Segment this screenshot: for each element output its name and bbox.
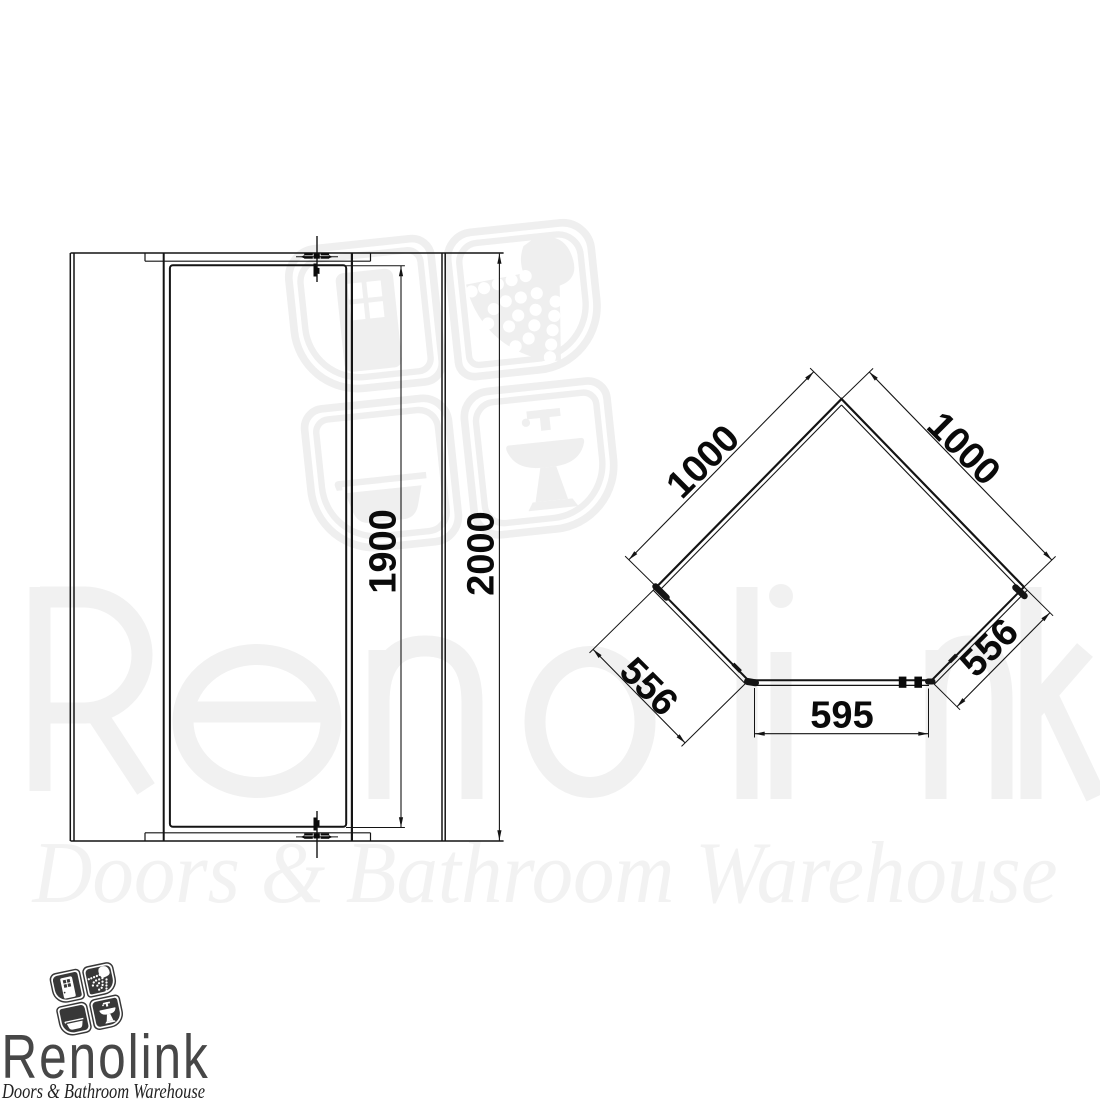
svg-text:1900: 1900 xyxy=(363,509,405,594)
svg-text:Doors & Bathroom Warehouse: Doors & Bathroom Warehouse xyxy=(1,1079,205,1100)
svg-text:595: 595 xyxy=(810,695,873,737)
svg-text:2000: 2000 xyxy=(461,511,503,596)
svg-text:Doors & Bathroom Warehouse: Doors & Bathroom Warehouse xyxy=(32,825,1058,922)
